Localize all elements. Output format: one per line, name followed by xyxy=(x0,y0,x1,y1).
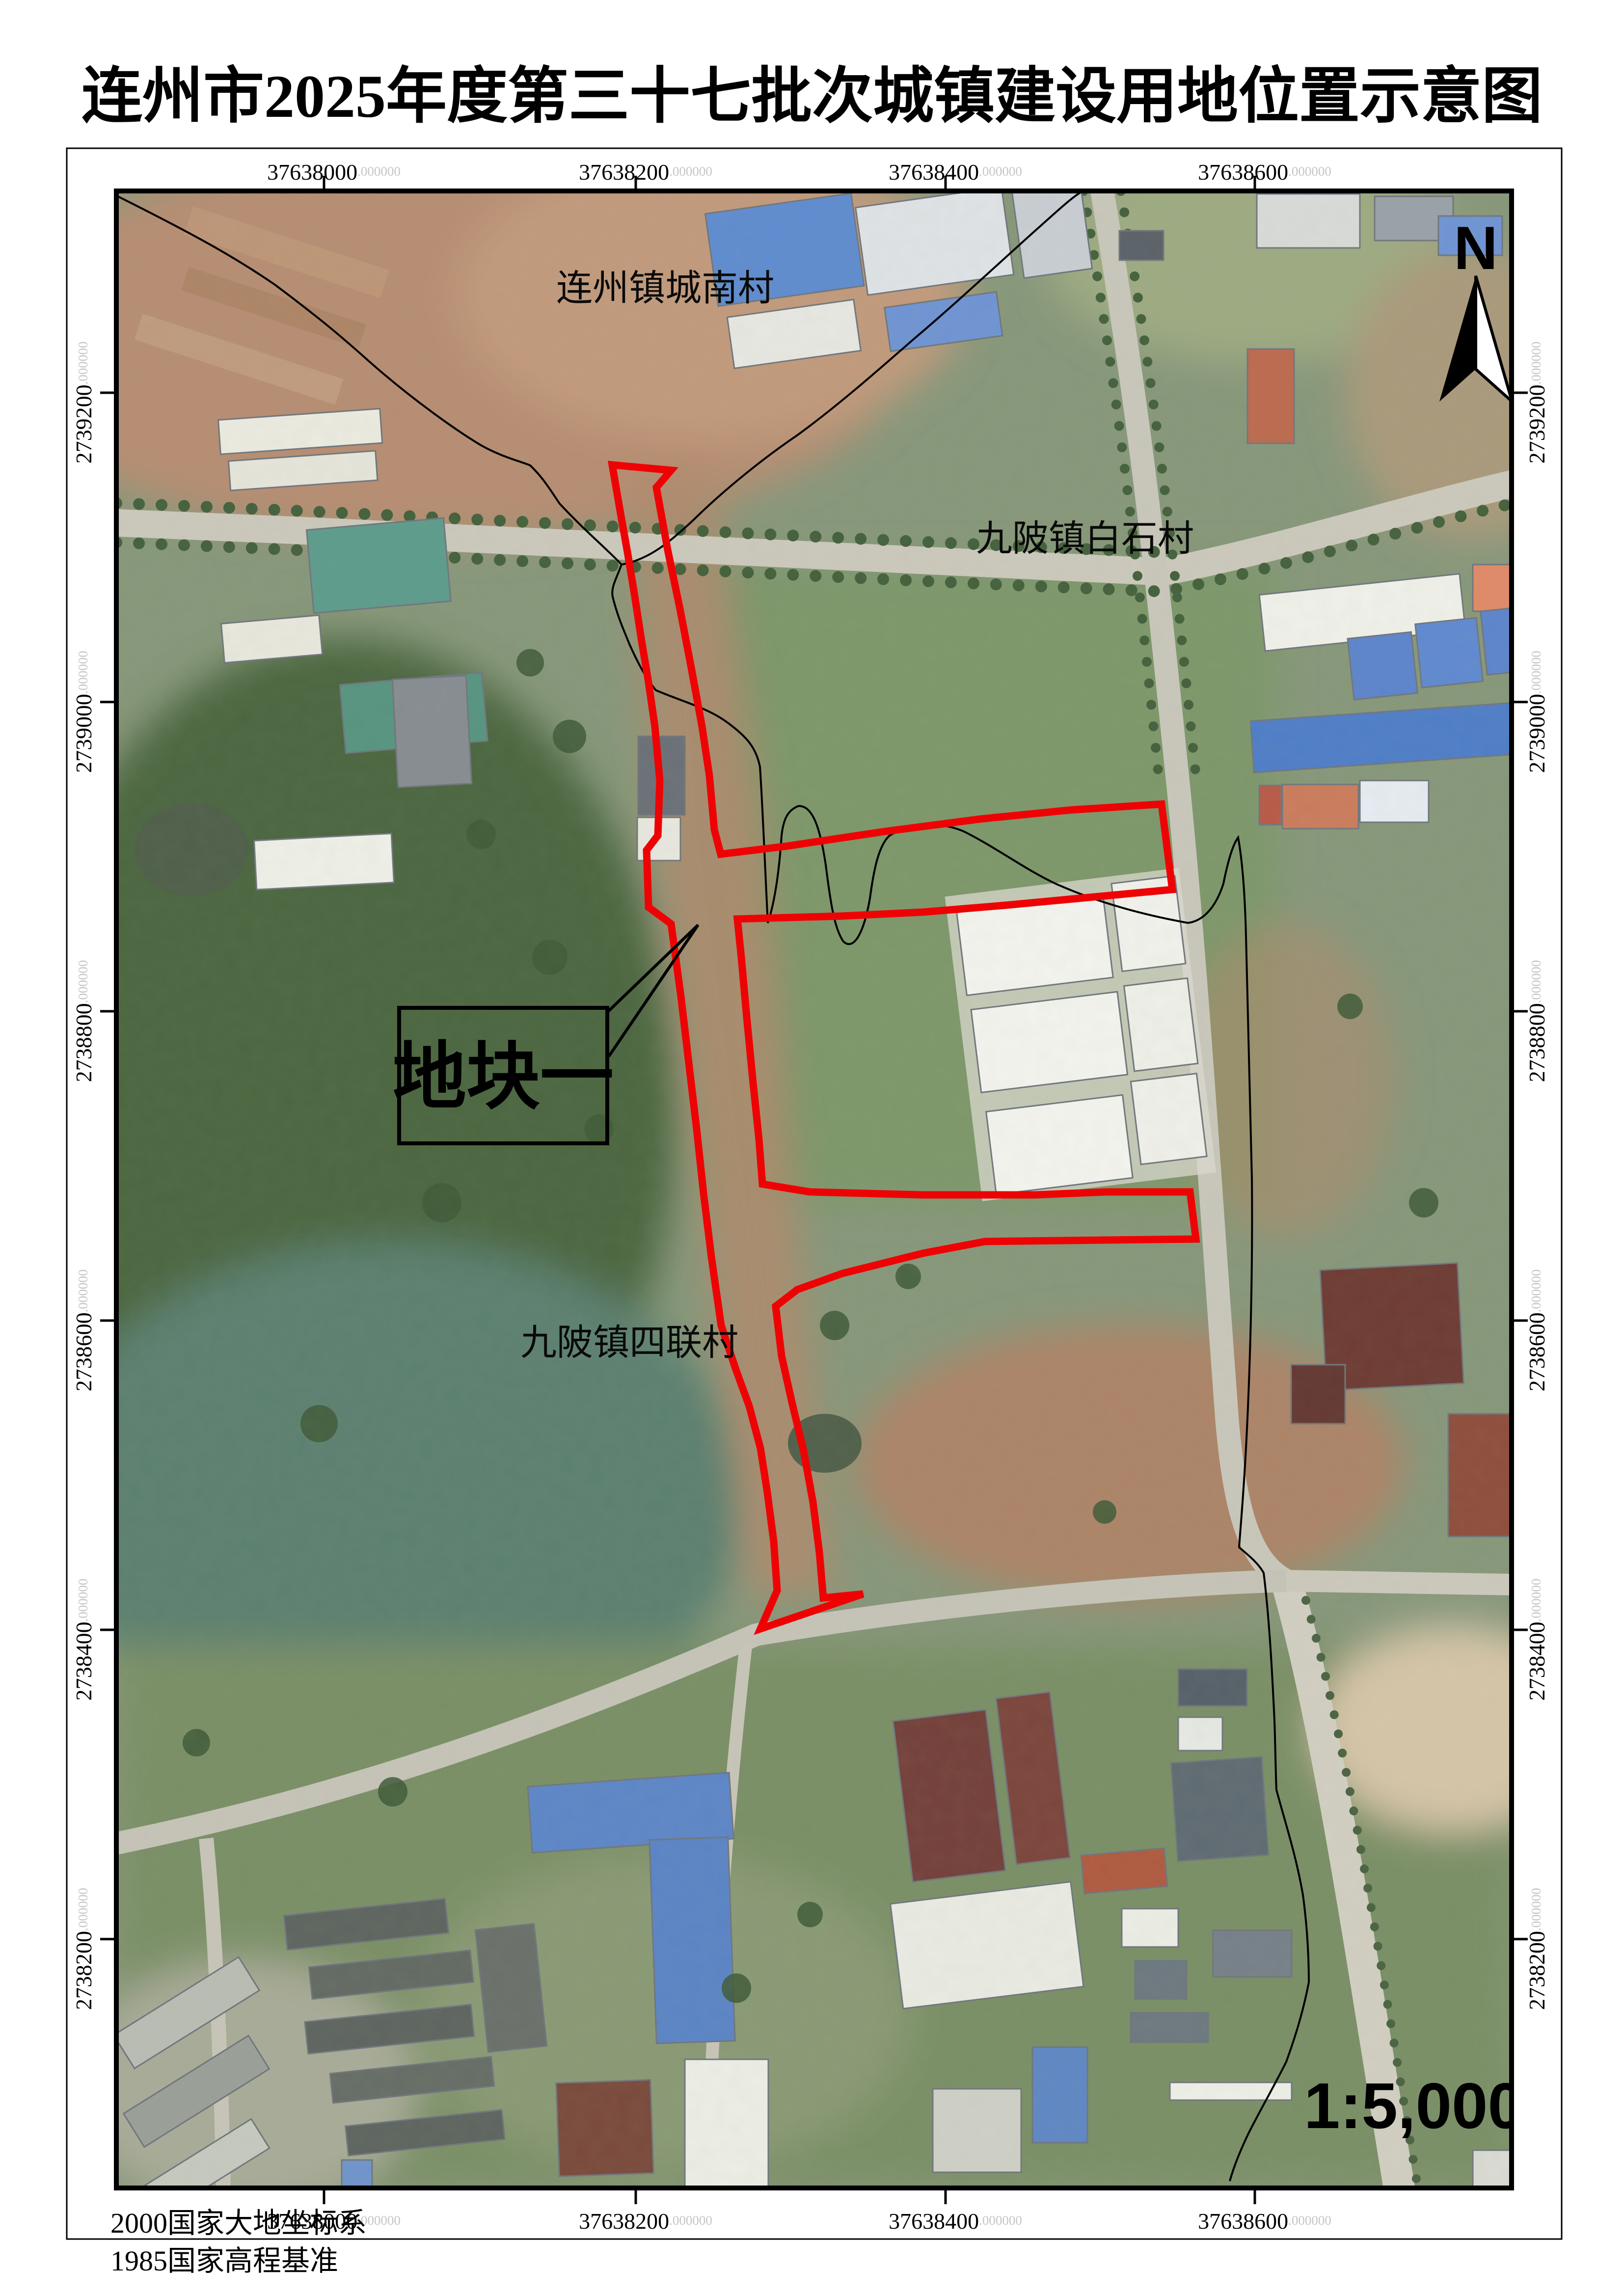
axis-label-right: 2738600.000000 xyxy=(1524,1269,1549,1392)
axis-label-bottom: 37638600.000000 xyxy=(1198,2209,1331,2234)
datum-note: 2000国家大地坐标系 xyxy=(110,2207,367,2239)
axis-label-right: 2738200.000000 xyxy=(1524,1888,1549,2010)
satellite-imagery: 地块一 连州镇城南村 九陂镇白石村 九陂镇四联村 N 1:5,000 xyxy=(0,147,1600,2216)
axis-label-left: 2738600.000000 xyxy=(71,1269,96,1392)
axis-label-top: 37638200.000000 xyxy=(579,160,712,185)
axis-label-bottom: 37638400.000000 xyxy=(889,2209,1022,2234)
village-label-baishi: 九陂镇白石村 xyxy=(976,519,1194,559)
axis-label-right: 2739000.000000 xyxy=(1524,651,1549,773)
map-sheet: 连州市2025年度第三十七批次城镇建设用地位置示意图 xyxy=(0,0,1624,2295)
axis-label-left: 2739000.000000 xyxy=(71,651,96,773)
axis-label-top: 37638600.000000 xyxy=(1198,160,1331,185)
axis-label-top: 37638000.000000 xyxy=(267,160,401,185)
scale-label: 1:5,000 xyxy=(1304,2070,1524,2142)
north-label: N xyxy=(1454,215,1498,282)
axis-label-bottom: 37638200.000000 xyxy=(579,2209,712,2234)
village-label-chengnan: 连州镇城南村 xyxy=(556,269,774,309)
axis-label-right: 2739200.000000 xyxy=(1524,342,1549,464)
axis-label-left: 2738400.000000 xyxy=(71,1579,96,1701)
map-document: 连州市2025年度第三十七批次城镇建设用地位置示意图 xyxy=(0,0,1624,2295)
axis-label-right: 2738400.000000 xyxy=(1524,1579,1549,1701)
axis-label-left: 2738800.000000 xyxy=(71,960,96,1082)
axis-label-left: 2739200.000000 xyxy=(71,342,96,464)
parcel-label: 地块一 xyxy=(393,1037,614,1118)
village-label-silian: 九陂镇四联村 xyxy=(520,1323,738,1363)
footer-notes: 2000国家大地坐标系 1985国家高程基准 xyxy=(110,2207,367,2277)
page-title: 连州市2025年度第三十七批次城镇建设用地位置示意图 xyxy=(81,63,1543,130)
elevation-note: 1985国家高程基准 xyxy=(110,2245,338,2277)
axis-label-left: 2738200.000000 xyxy=(71,1888,96,2010)
axis-label-top: 37638400.000000 xyxy=(889,160,1022,185)
axis-label-right: 2738800.000000 xyxy=(1524,960,1549,1082)
